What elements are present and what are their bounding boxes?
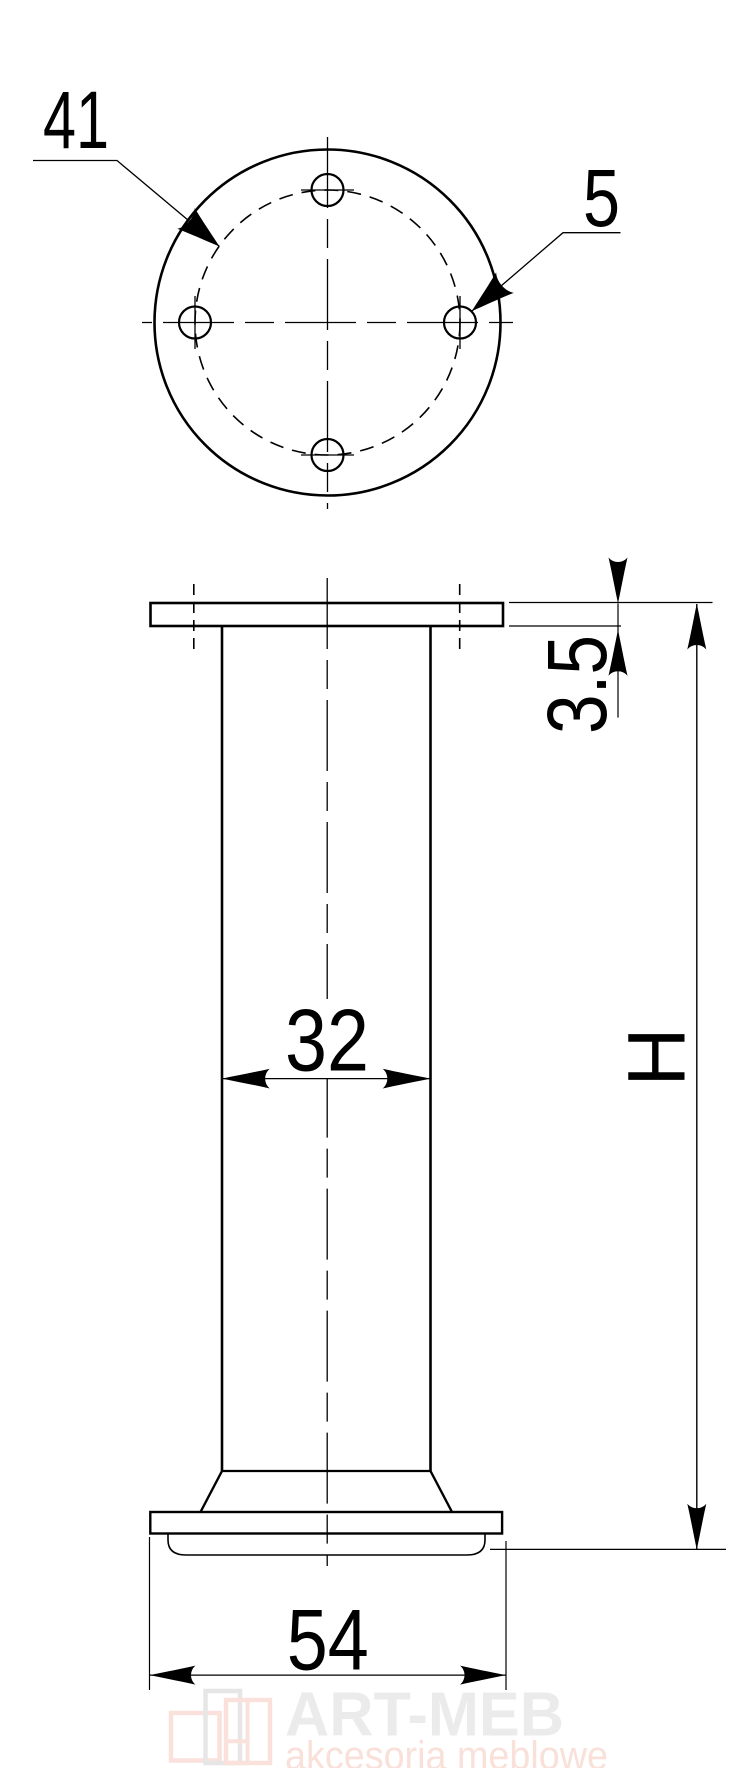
- svg-text:32: 32: [285, 991, 369, 1090]
- svg-text:3.5: 3.5: [530, 635, 624, 734]
- svg-text:H: H: [612, 1027, 703, 1086]
- svg-text:5: 5: [583, 153, 620, 244]
- svg-text:41: 41: [43, 75, 109, 166]
- svg-text:54: 54: [287, 1593, 369, 1689]
- svg-text:akcesoria meblowe: akcesoria meblowe: [285, 1734, 608, 1768]
